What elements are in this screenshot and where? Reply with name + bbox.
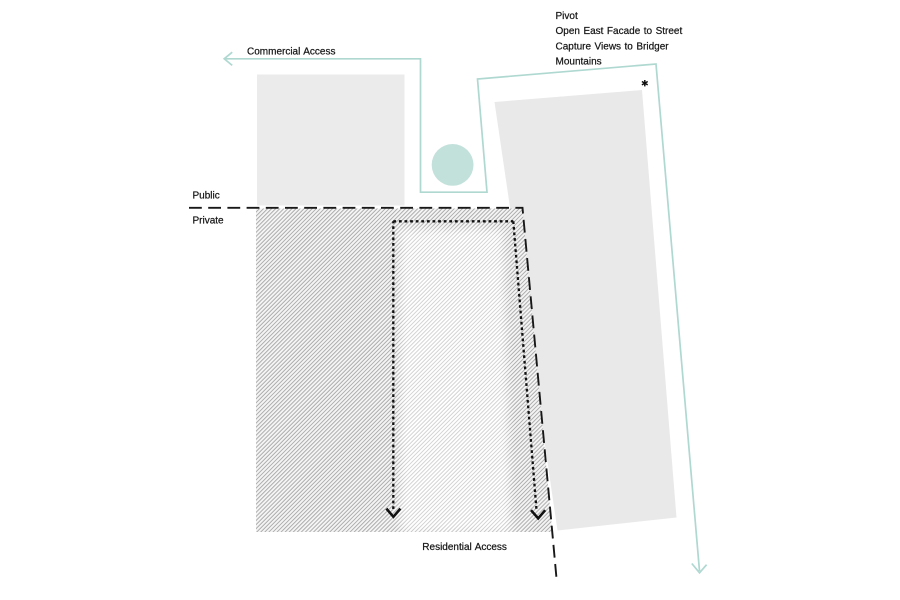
svg-text:Private: Private: [193, 216, 225, 227]
svg-text:Capture Views to Bridger: Capture Views to Bridger: [556, 41, 670, 52]
svg-text:Residential Access: Residential Access: [422, 542, 507, 553]
svg-text:Commercial Access: Commercial Access: [247, 47, 336, 58]
svg-text:Public: Public: [193, 190, 220, 201]
svg-text:Pivot: Pivot: [556, 11, 578, 22]
svg-text:Mountains: Mountains: [556, 57, 602, 68]
svg-text:Open East Facade to Street: Open East Facade to Street: [556, 26, 683, 37]
